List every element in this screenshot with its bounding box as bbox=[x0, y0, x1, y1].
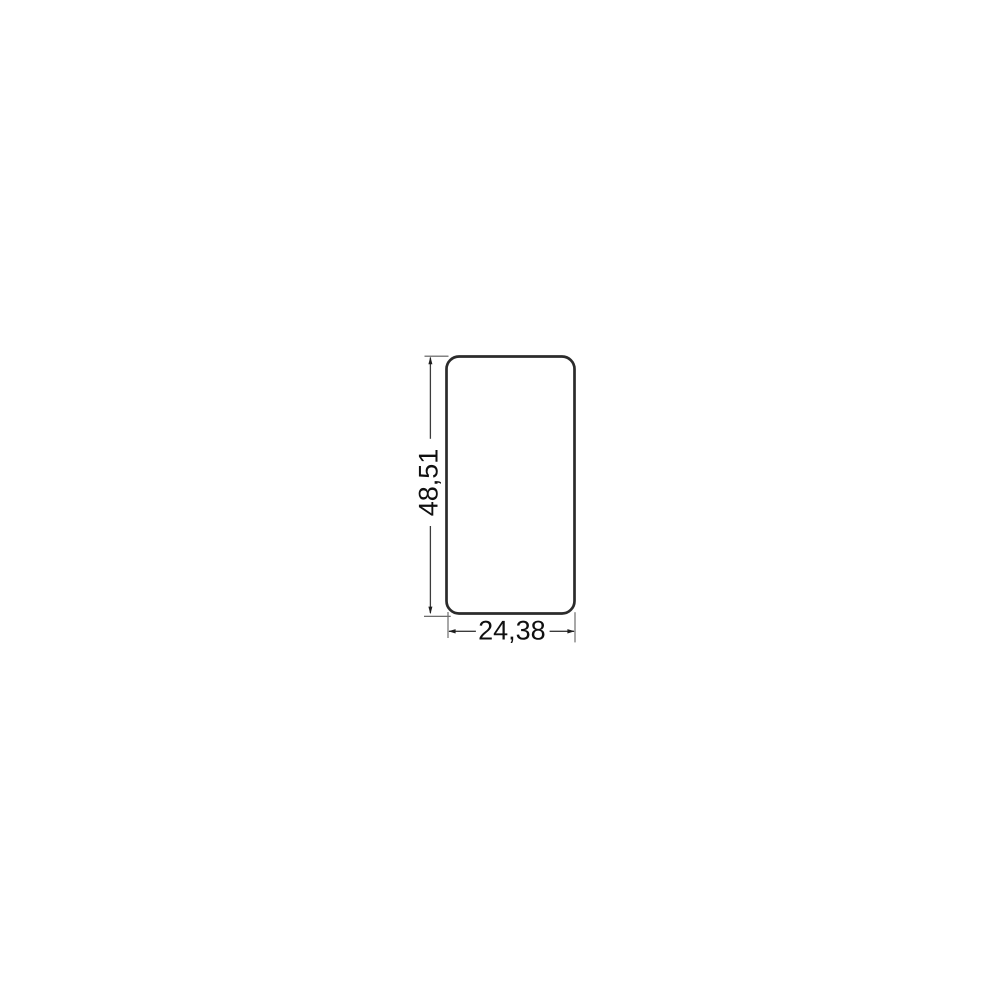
svg-text:24,38: 24,38 bbox=[478, 616, 546, 646]
svg-text:48,51: 48,51 bbox=[414, 449, 444, 517]
